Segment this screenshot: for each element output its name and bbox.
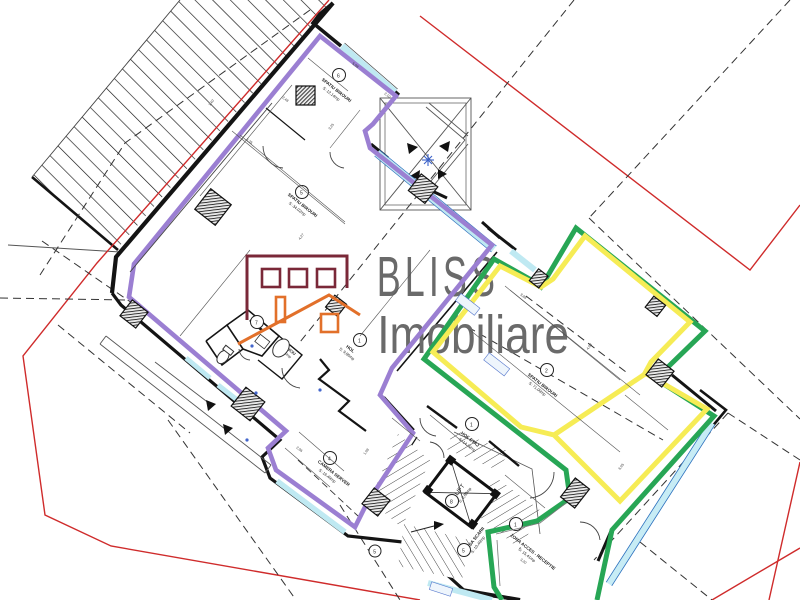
svg-text:1: 1 bbox=[470, 423, 473, 429]
svg-text:7: 7 bbox=[255, 321, 258, 327]
svg-text:6: 6 bbox=[337, 74, 340, 80]
svg-text:5: 5 bbox=[300, 191, 303, 197]
svg-text:8: 8 bbox=[450, 500, 453, 506]
svg-text:5: 5 bbox=[462, 549, 465, 555]
svg-text:5: 5 bbox=[373, 550, 376, 556]
svg-text:1: 1 bbox=[514, 523, 517, 529]
svg-text:1: 1 bbox=[358, 339, 361, 345]
svg-text:2: 2 bbox=[545, 369, 548, 375]
